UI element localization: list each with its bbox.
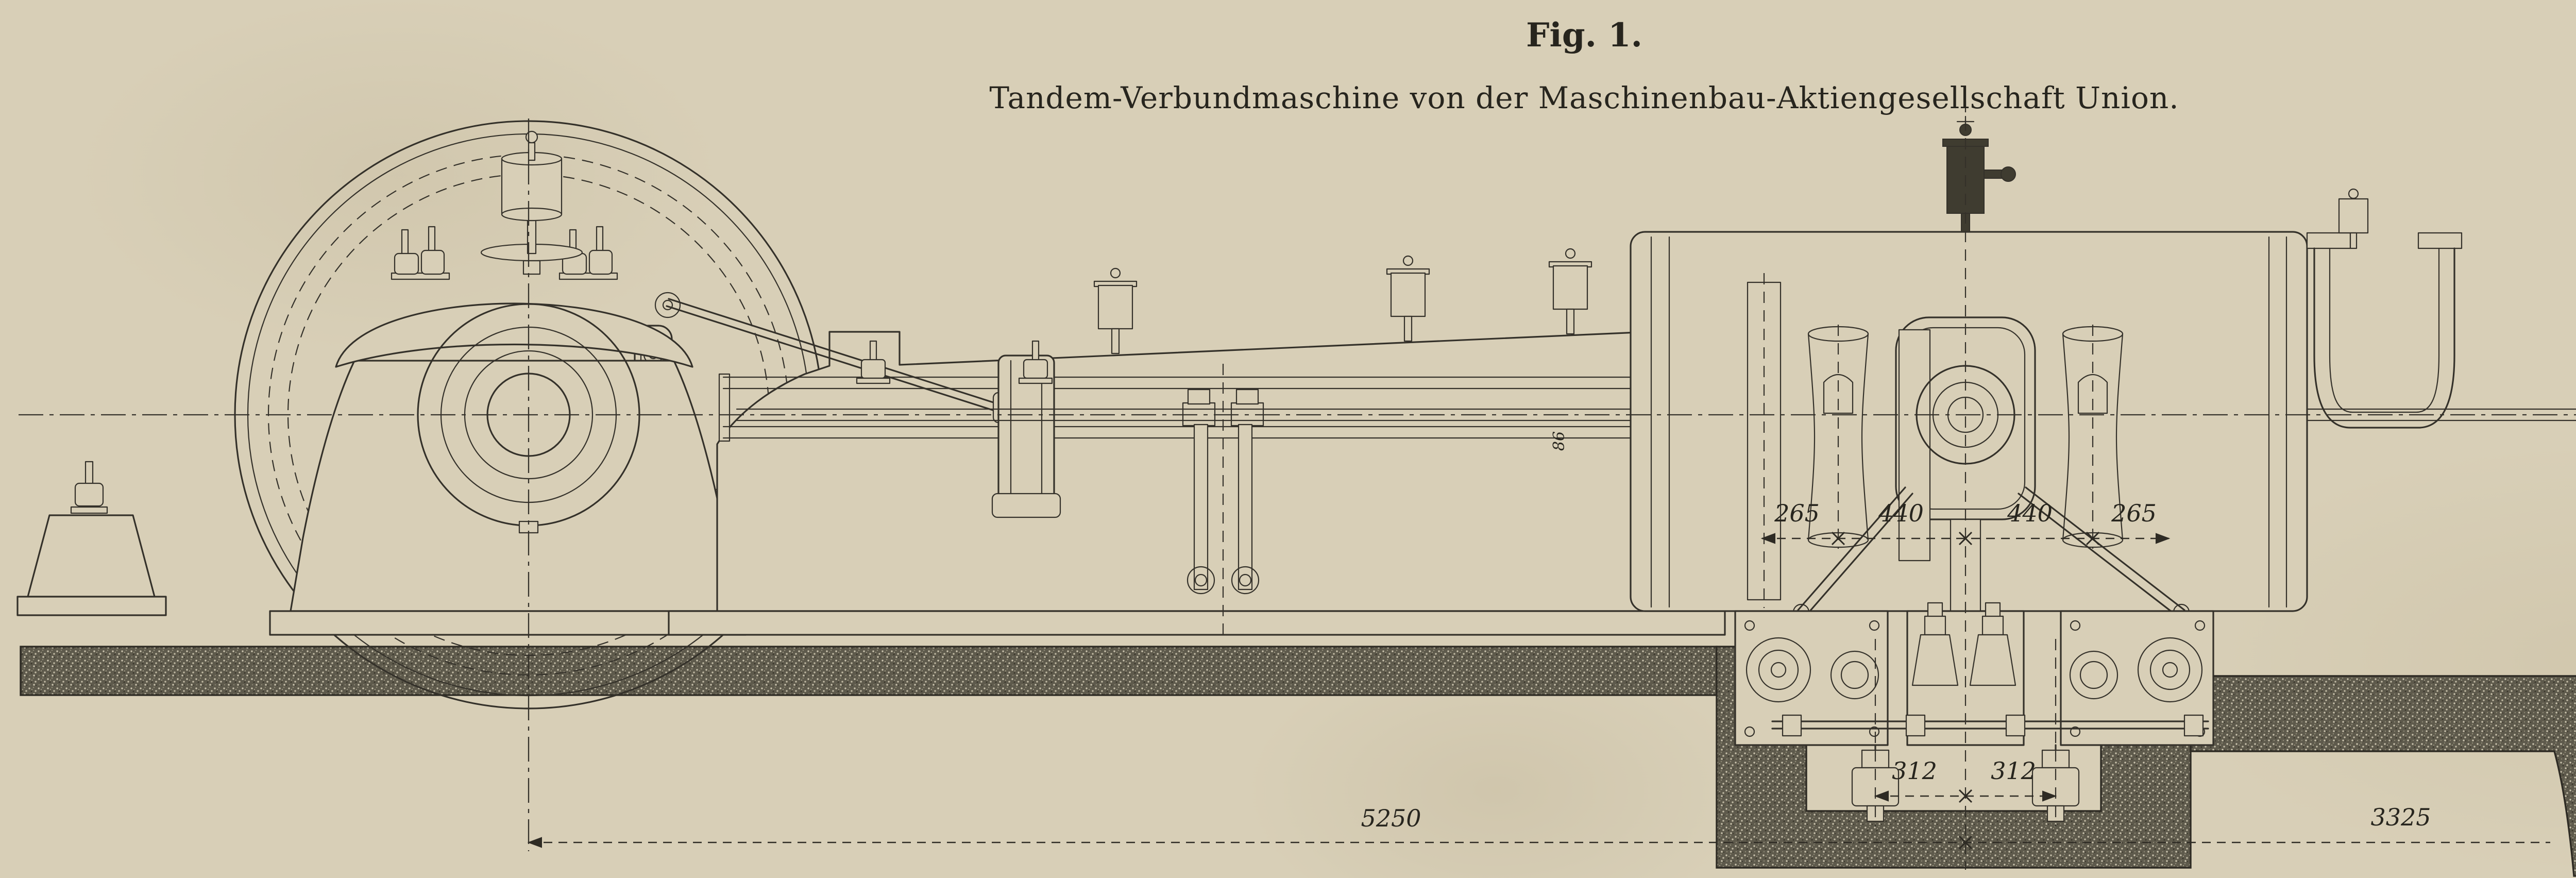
main-bearing-pedestal (270, 131, 746, 635)
dim-label-440-right: 440 (2007, 499, 2053, 527)
bearing-lubricator (481, 131, 582, 274)
ground-strip-left (21, 647, 1717, 695)
cap-bolt (395, 254, 418, 274)
dim-label-312-left: 312 (1892, 757, 1937, 785)
valve-gear-box (1735, 603, 2213, 745)
figure-title: Tandem-Verbundmaschine von der Maschinen… (989, 80, 2179, 115)
dim-label-440-left: 440 (1878, 499, 1924, 527)
receiver-pipe (2307, 189, 2576, 428)
bedplate-left-foot (18, 462, 166, 615)
receiver-lubricator (2339, 199, 2368, 233)
dim-label-265-right: 265 (2111, 499, 2157, 527)
ground-strip-right-and-pier (2191, 676, 2576, 876)
hp-lubricator (1943, 116, 2015, 232)
engine-drawing: 570 570 265 440 440 265 312 312 635 635 … (0, 0, 2576, 878)
dim-label-86: 86 (1550, 431, 1568, 451)
figure-caption: Fig. 1. Tandem-Verbundmaschine von der M… (989, 16, 2179, 115)
dim-label-312-right: 312 (1991, 757, 2036, 785)
hp-cylinder (1631, 116, 2307, 620)
dim-label-265-left: 265 (1774, 499, 1820, 527)
dim-label-3325: 3325 (2370, 803, 2431, 831)
dim-label-5250: 5250 (1361, 804, 1421, 832)
anchor-bolt (86, 462, 93, 484)
figure-number: Fig. 1. (1526, 16, 1642, 55)
scanned-plate: 570 570 265 440 440 265 312 312 635 635 … (0, 0, 2576, 878)
